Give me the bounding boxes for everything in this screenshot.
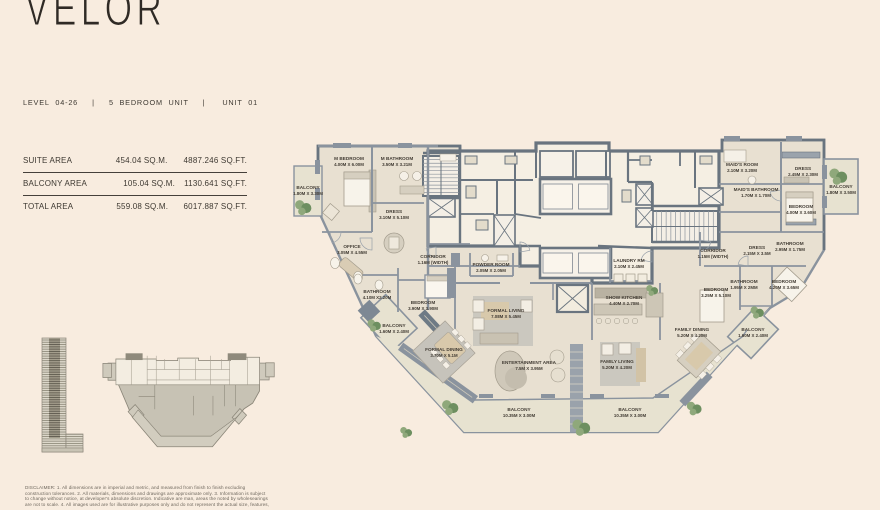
svg-text:1.15M (WIDTH): 1.15M (WIDTH) — [698, 254, 729, 259]
svg-text:5.20M X 4.20M: 5.20M X 4.20M — [677, 333, 707, 338]
svg-text:1.60M X 2.40M: 1.60M X 2.40M — [379, 329, 409, 334]
svg-text:FAMILY DINING: FAMILY DINING — [675, 327, 710, 332]
svg-text:BEDROOM: BEDROOM — [411, 300, 436, 305]
svg-text:DRESS: DRESS — [386, 209, 402, 214]
svg-text:3.50M X 3.21M: 3.50M X 3.21M — [382, 162, 412, 167]
svg-text:4.40M X 2.70M: 4.40M X 2.70M — [609, 301, 639, 306]
svg-text:FORMAL LIVING: FORMAL LIVING — [488, 308, 525, 313]
svg-text:3.25M X 5.10M: 3.25M X 5.10M — [701, 293, 731, 298]
svg-text:3.70M X 5.1M: 3.70M X 5.1M — [430, 353, 458, 358]
svg-text:1.60M X 2.40M: 1.60M X 2.40M — [738, 333, 768, 338]
svg-text:M BEDROOM: M BEDROOM — [334, 156, 364, 161]
svg-text:1.80M X 3.50M: 1.80M X 3.50M — [826, 190, 856, 195]
svg-text:BALCONY: BALCONY — [741, 327, 765, 332]
svg-text:LAUNDRY RM: LAUNDRY RM — [613, 258, 644, 263]
svg-text:DRESS: DRESS — [795, 166, 811, 171]
svg-text:CORRIDOR: CORRIDOR — [700, 248, 726, 253]
svg-text:7.5M X 3.95M: 7.5M X 3.95M — [515, 366, 543, 371]
svg-text:BALCONY: BALCONY — [507, 407, 531, 412]
svg-text:CORRIDOR: CORRIDOR — [420, 254, 446, 259]
svg-text:2.95M X 1.75M: 2.95M X 1.75M — [775, 247, 805, 252]
svg-text:POWDER ROOM: POWDER ROOM — [473, 262, 510, 267]
svg-text:10.35M X 3.00M: 10.35M X 3.00M — [614, 413, 647, 418]
svg-text:FAMILY LIVING: FAMILY LIVING — [600, 359, 634, 364]
svg-text:BALCONY: BALCONY — [829, 184, 853, 189]
svg-text:4.10M X2.20M: 4.10M X2.20M — [363, 295, 392, 300]
svg-text:5.20M X 4.20M: 5.20M X 4.20M — [602, 365, 632, 370]
svg-text:MAID'S BATHROOM: MAID'S BATHROOM — [734, 187, 779, 192]
svg-text:2.10M X 2.45M: 2.10M X 2.45M — [614, 264, 644, 269]
svg-text:DRESS: DRESS — [749, 245, 765, 250]
svg-text:BEDROOM: BEDROOM — [772, 279, 797, 284]
svg-text:2.15M X 3.5M: 2.15M X 3.5M — [743, 251, 771, 256]
svg-text:3.10M X 5.10M: 3.10M X 5.10M — [379, 215, 409, 220]
svg-text:BALCONY: BALCONY — [296, 185, 320, 190]
svg-text:MAID'S ROOM: MAID'S ROOM — [726, 162, 758, 167]
svg-text:1.16M (WIDTH): 1.16M (WIDTH) — [418, 260, 449, 265]
svg-text:M BATHROOM: M BATHROOM — [381, 156, 414, 161]
svg-text:BATHROOM: BATHROOM — [776, 241, 803, 246]
svg-text:3.05M X 4.55M: 3.05M X 4.55M — [337, 250, 367, 255]
svg-text:7.08M X 5.45M: 7.08M X 5.45M — [491, 314, 521, 319]
svg-text:3.90M X 3.90M: 3.90M X 3.90M — [408, 306, 438, 311]
svg-text:BALCONY: BALCONY — [618, 407, 642, 412]
svg-text:OFFICE: OFFICE — [343, 244, 360, 249]
svg-text:1.80M X 3.30M: 1.80M X 3.30M — [293, 191, 323, 196]
svg-text:BEDROOM: BEDROOM — [704, 287, 729, 292]
svg-text:4.20M X 3.65M: 4.20M X 3.65M — [769, 285, 799, 290]
svg-text:1.70M X 1.70M: 1.70M X 1.70M — [741, 193, 771, 198]
svg-text:BATHROOM: BATHROOM — [363, 289, 390, 294]
svg-text:2.10M X 3.20M: 2.10M X 3.20M — [727, 168, 757, 173]
svg-text:SHOW KITCHEN: SHOW KITCHEN — [606, 295, 643, 300]
svg-text:10.35M X 3.00M: 10.35M X 3.00M — [503, 413, 536, 418]
svg-text:2.45M X 2.30M: 2.45M X 2.30M — [788, 172, 818, 177]
svg-text:ENTERTAINMENT AREA: ENTERTAINMENT AREA — [502, 360, 557, 365]
svg-text:BALCONY: BALCONY — [382, 323, 406, 328]
svg-text:FORMAL DINING: FORMAL DINING — [425, 347, 463, 352]
svg-text:4.00M X 6.00M: 4.00M X 6.00M — [334, 162, 364, 167]
svg-text:BEDROOM: BEDROOM — [789, 204, 814, 209]
svg-text:BATHROOM: BATHROOM — [730, 279, 757, 284]
svg-text:1.95M X 2MM: 1.95M X 2MM — [730, 285, 758, 290]
svg-text:4.00M X 3.60M: 4.00M X 3.60M — [786, 210, 816, 215]
svg-text:2.05M X 2.05M: 2.05M X 2.05M — [476, 268, 506, 273]
